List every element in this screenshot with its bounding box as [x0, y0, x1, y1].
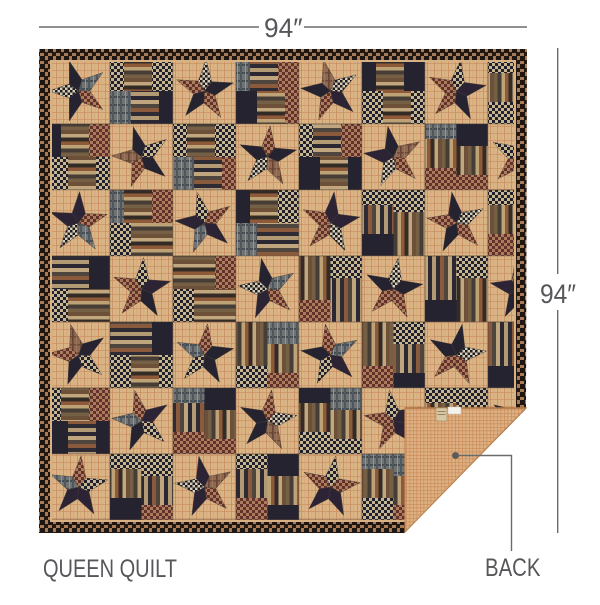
svg-text:94″: 94″ — [540, 279, 576, 309]
svg-text:94″: 94″ — [264, 13, 303, 43]
svg-text:BACK: BACK — [485, 554, 541, 582]
svg-text:QUEEN QUILT: QUEEN QUILT — [43, 555, 177, 583]
